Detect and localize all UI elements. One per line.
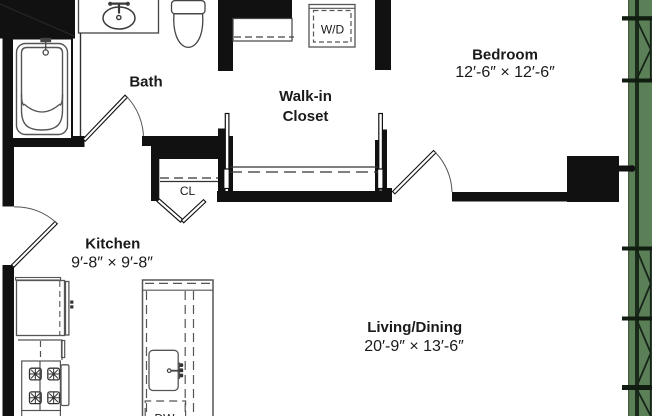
svg-text:Walk-in: Walk-in bbox=[279, 88, 332, 105]
svg-text:9′-8″ × 9′-8″: 9′-8″ × 9′-8″ bbox=[71, 255, 153, 272]
svg-text:CL: CL bbox=[180, 184, 196, 198]
svg-text:20′-9″ × 13′-6″: 20′-9″ × 13′-6″ bbox=[364, 338, 464, 355]
svg-text:Living/Dining: Living/Dining bbox=[367, 319, 462, 336]
svg-text:DW: DW bbox=[155, 412, 176, 416]
svg-text:Bedroom: Bedroom bbox=[472, 47, 538, 64]
svg-text:Bath: Bath bbox=[129, 74, 162, 91]
svg-text:12′-6″ × 12′-6″: 12′-6″ × 12′-6″ bbox=[455, 64, 555, 81]
svg-text:W/D: W/D bbox=[321, 23, 345, 37]
svg-text:Closet: Closet bbox=[283, 108, 329, 125]
svg-text:Kitchen: Kitchen bbox=[85, 236, 140, 253]
